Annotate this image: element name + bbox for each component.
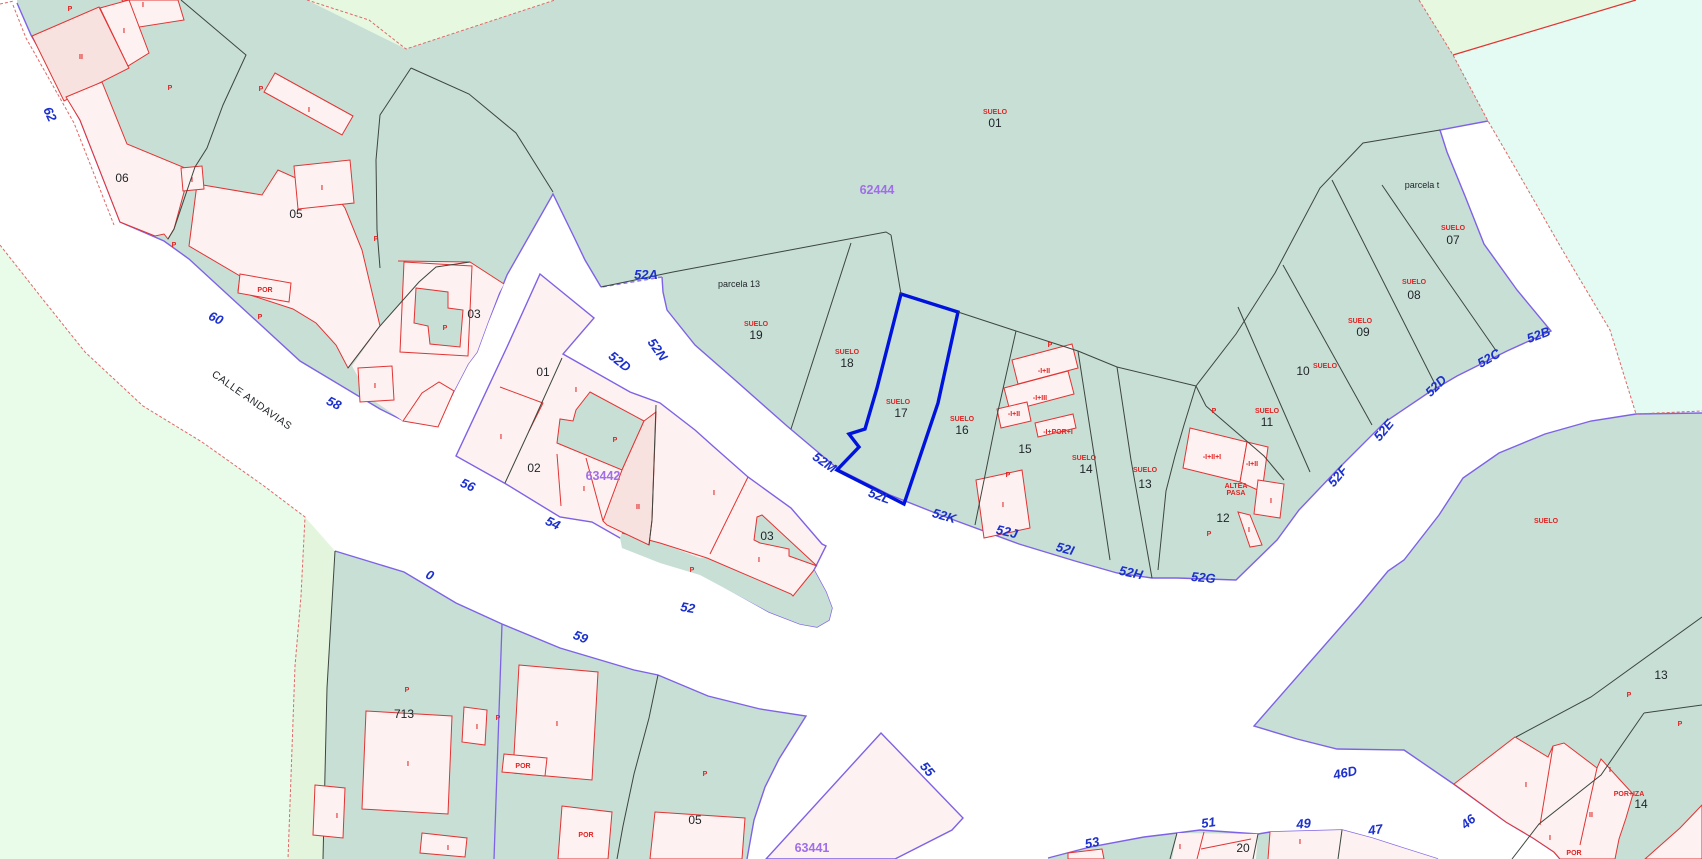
svg-text:I: I — [1179, 844, 1181, 851]
svg-text:SUELO: SUELO — [1255, 408, 1280, 415]
svg-text:SUELO: SUELO — [983, 109, 1008, 116]
svg-text:I: I — [1002, 502, 1004, 509]
svg-text:-I+POR+I: -I+POR+I — [1043, 429, 1073, 436]
svg-text:POR: POR — [257, 287, 272, 294]
svg-text:01: 01 — [988, 116, 1002, 130]
svg-text:-I+II+I: -I+II+I — [1203, 454, 1221, 461]
svg-text:P: P — [443, 325, 448, 332]
svg-text:P: P — [172, 242, 177, 249]
svg-text:SUELO: SUELO — [1402, 279, 1427, 286]
svg-text:P: P — [405, 687, 410, 694]
svg-text:I: I — [575, 387, 577, 394]
svg-text:P: P — [1627, 692, 1632, 699]
svg-text:03: 03 — [467, 307, 481, 321]
svg-text:51: 51 — [1200, 814, 1216, 831]
svg-text:18: 18 — [840, 356, 854, 370]
svg-text:13: 13 — [1654, 668, 1668, 682]
svg-text:05: 05 — [289, 207, 303, 221]
svg-text:P: P — [1678, 721, 1683, 728]
svg-text:P: P — [1207, 531, 1212, 538]
svg-text:63441: 63441 — [795, 841, 830, 855]
svg-text:I: I — [1609, 767, 1611, 774]
svg-text:POR: POR — [1566, 850, 1581, 857]
svg-text:P: P — [1048, 342, 1053, 349]
svg-text:I: I — [500, 434, 502, 441]
svg-text:I: I — [142, 2, 144, 9]
svg-text:06: 06 — [115, 171, 129, 185]
svg-text:P: P — [703, 771, 708, 778]
svg-text:49: 49 — [1295, 815, 1312, 831]
svg-text:I: I — [1248, 527, 1250, 534]
svg-text:II: II — [1589, 812, 1593, 819]
svg-text:I: I — [407, 761, 409, 768]
svg-text:12: 12 — [1216, 511, 1230, 525]
svg-text:P: P — [1212, 408, 1217, 415]
svg-text:II: II — [636, 504, 640, 511]
svg-text:10: 10 — [1296, 364, 1310, 378]
svg-text:I: I — [583, 486, 585, 493]
svg-text:SUELO: SUELO — [744, 321, 769, 328]
svg-text:52A: 52A — [634, 267, 658, 282]
svg-text:SUELO: SUELO — [1313, 363, 1338, 370]
svg-text:13: 13 — [1138, 477, 1152, 491]
svg-text:P: P — [374, 236, 379, 243]
svg-text:P: P — [690, 567, 695, 574]
svg-text:09: 09 — [1356, 325, 1370, 339]
svg-text:I: I — [191, 177, 193, 184]
svg-text:parcela t: parcela t — [1405, 180, 1440, 190]
svg-text:63442: 63442 — [586, 469, 621, 483]
svg-text:I: I — [1270, 498, 1272, 505]
svg-text:47: 47 — [1366, 821, 1384, 838]
svg-text:713: 713 — [394, 707, 414, 721]
svg-text:I: I — [1549, 835, 1551, 842]
svg-text:07: 07 — [1446, 233, 1460, 247]
svg-text:P: P — [496, 715, 501, 722]
svg-text:SUELO: SUELO — [1441, 225, 1466, 232]
svg-text:I: I — [758, 557, 760, 564]
svg-text:I: I — [1299, 839, 1301, 846]
svg-text:I: I — [1525, 782, 1527, 789]
svg-text:16: 16 — [955, 423, 969, 437]
svg-text:POR: POR — [515, 763, 530, 770]
svg-text:11: 11 — [1261, 415, 1274, 429]
svg-text:POR: POR — [578, 832, 593, 839]
svg-text:17: 17 — [894, 406, 908, 420]
svg-text:01: 01 — [536, 365, 550, 379]
svg-text:SUELO: SUELO — [886, 399, 911, 406]
svg-text:I: I — [476, 724, 478, 731]
svg-text:I: I — [336, 813, 338, 820]
svg-text:52G: 52G — [1190, 569, 1216, 586]
svg-text:SUELO: SUELO — [835, 349, 860, 356]
svg-text:I: I — [123, 28, 125, 35]
svg-text:I: I — [374, 383, 376, 390]
svg-text:62444: 62444 — [860, 183, 895, 197]
svg-text:I: I — [308, 107, 310, 114]
svg-text:-I+II: -I+II — [1038, 368, 1050, 375]
svg-text:15: 15 — [1018, 442, 1032, 456]
svg-text:-I+II: -I+II — [1246, 461, 1258, 468]
svg-text:20: 20 — [1236, 841, 1250, 855]
svg-text:SUELO: SUELO — [1133, 467, 1158, 474]
svg-text:SUELO: SUELO — [950, 416, 975, 423]
svg-text:P: P — [68, 6, 73, 13]
svg-text:I: I — [321, 185, 323, 192]
svg-text:-I+III: -I+III — [1033, 395, 1047, 402]
svg-text:parcela 13: parcela 13 — [718, 279, 760, 289]
svg-text:PASA: PASA — [1227, 490, 1246, 497]
svg-text:P: P — [1006, 472, 1011, 479]
svg-text:SUELO: SUELO — [1348, 318, 1373, 325]
svg-text:-I+II: -I+II — [1008, 411, 1020, 418]
svg-text:05: 05 — [688, 813, 702, 827]
svg-text:P: P — [613, 437, 618, 444]
svg-text:P: P — [259, 86, 264, 93]
svg-text:P: P — [258, 314, 263, 321]
svg-text:19: 19 — [749, 328, 763, 342]
svg-text:I: I — [447, 845, 449, 852]
svg-text:II: II — [79, 54, 83, 61]
svg-text:14: 14 — [1079, 462, 1093, 476]
svg-text:P: P — [168, 85, 173, 92]
svg-text:SUELO: SUELO — [1072, 455, 1097, 462]
svg-text:14: 14 — [1634, 797, 1648, 811]
svg-text:ALTEA: ALTEA — [1225, 483, 1248, 490]
svg-text:POR+IZA: POR+IZA — [1614, 791, 1645, 798]
svg-text:08: 08 — [1407, 288, 1421, 302]
svg-text:02: 02 — [527, 461, 541, 475]
svg-text:I: I — [556, 721, 558, 728]
svg-text:03: 03 — [760, 529, 774, 543]
svg-text:SUELO: SUELO — [1534, 518, 1559, 525]
svg-text:I: I — [713, 490, 715, 497]
